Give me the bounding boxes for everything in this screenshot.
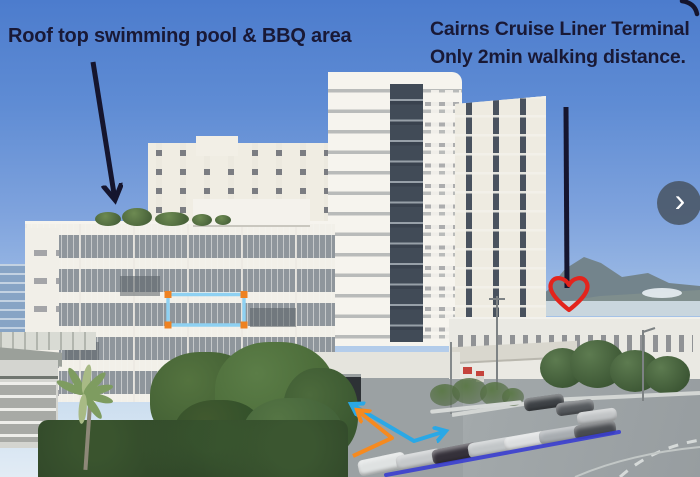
- annotation-overlay: [0, 0, 700, 477]
- pool-arrow-icon: [93, 62, 115, 200]
- cyan-route-arrow-icon: [351, 404, 446, 441]
- photo-viewer: Roof top swimming pool & BBQ area Cairns…: [0, 0, 700, 477]
- next-photo-button[interactable]: ›: [657, 181, 700, 225]
- terminal-annotation-label: Cairns Cruise Liner Terminal Only 2min w…: [430, 15, 690, 71]
- heart-icon: [551, 278, 588, 310]
- terminal-label-line1: Cairns Cruise Liner Terminal: [430, 15, 690, 43]
- terminal-label-line2: Only 2min walking distance.: [430, 43, 690, 71]
- selection-handle[interactable]: [241, 291, 248, 298]
- terminal-pointer-line: [566, 107, 567, 288]
- selection-handle[interactable]: [241, 322, 248, 329]
- corner-scribble: [682, 1, 697, 14]
- pool-annotation-label: Roof top swimming pool & BBQ area: [8, 25, 351, 48]
- selection-handle[interactable]: [165, 322, 172, 329]
- selection-handle[interactable]: [165, 291, 172, 298]
- selection-rectangle[interactable]: [168, 295, 244, 326]
- chevron-right-icon: ›: [675, 184, 686, 216]
